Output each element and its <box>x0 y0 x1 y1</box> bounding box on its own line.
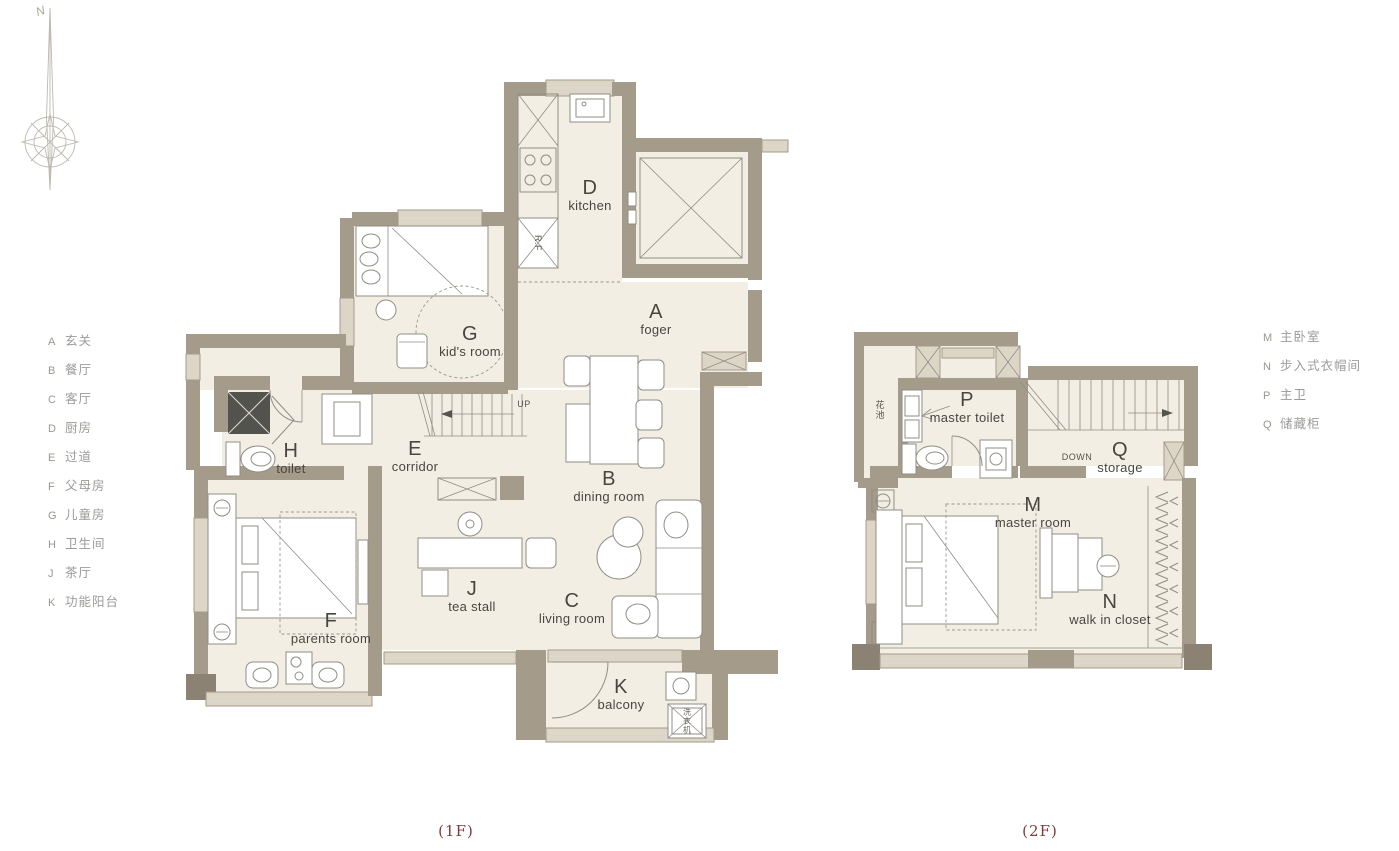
room-label-corridor: Ecorridor <box>392 439 438 475</box>
legend-item: J茶厅 <box>48 562 119 581</box>
legend-key: G <box>48 510 65 522</box>
legend-key: Q <box>1263 419 1280 431</box>
legend-item: N步入式衣帽间 <box>1263 355 1361 374</box>
legend-label: 儿童房 <box>65 504 106 523</box>
legend-label: 茶厅 <box>65 562 92 581</box>
legend-label: 功能阳台 <box>65 591 119 610</box>
legend-key: D <box>48 423 65 435</box>
floorplan-drawing <box>0 0 1399 851</box>
legend-item: K功能阳台 <box>48 591 119 610</box>
room-label-storage: Qstorage <box>1097 440 1142 476</box>
legend-key: J <box>48 568 65 580</box>
room-label-foyer: Afoger <box>640 302 671 338</box>
legend-item: F父母房 <box>48 475 119 494</box>
legend-key: C <box>48 394 65 406</box>
legend-key: K <box>48 597 65 609</box>
room-label-kids-room: Gkid's room <box>439 324 501 360</box>
stairs-up-label: UP <box>517 399 531 409</box>
legend-label: 客厅 <box>65 388 92 407</box>
legend-item: A玄关 <box>48 330 119 349</box>
legend-label: 父母房 <box>65 475 106 494</box>
legend-key: A <box>48 336 65 348</box>
stairs-down-label: DOWN <box>1062 452 1093 462</box>
planter-label: 花池 <box>874 400 887 420</box>
room-label-master-room: Mmaster room <box>995 495 1071 531</box>
compass-rose-icon <box>22 8 78 190</box>
legend-key: N <box>1263 361 1280 373</box>
washer-label: 洗衣机 <box>682 708 693 735</box>
legend-2f: M主卧室 N步入式衣帽间 P主卫 Q储藏柜 <box>1263 326 1361 442</box>
room-label-tea-stall: Jtea stall <box>448 579 496 615</box>
legend-item: H卫生间 <box>48 533 119 552</box>
legend-1f: A玄关 B餐厅 C客厅 D厨房 E过道 F父母房 G儿童房 H卫生间 J茶厅 K… <box>48 330 119 620</box>
legend-label: 步入式衣帽间 <box>1280 355 1361 374</box>
floorplan-canvas: N A玄关 B餐厅 C客厅 D厨房 E过道 F父母房 G儿童房 H卫生间 J茶厅… <box>0 0 1399 851</box>
dining-table <box>564 356 664 468</box>
caption-floor1: (1F) <box>438 822 474 840</box>
legend-label: 玄关 <box>65 330 92 349</box>
legend-label: 主卫 <box>1280 384 1307 403</box>
legend-item: E过道 <box>48 446 119 465</box>
legend-label: 卫生间 <box>65 533 106 552</box>
legend-key: E <box>48 452 65 464</box>
room-label-living-room: Cliving room <box>539 591 605 627</box>
room-label-master-toilet: Pmaster toilet <box>930 390 1005 426</box>
room-label-kitchen: Dkitchen <box>568 178 611 214</box>
room-label-dining-room: Bdining room <box>573 469 644 505</box>
legend-label: 过道 <box>65 446 92 465</box>
legend-label: 厨房 <box>65 417 92 436</box>
legend-key: P <box>1263 390 1280 402</box>
legend-key: F <box>48 481 65 493</box>
legend-item: D厨房 <box>48 417 119 436</box>
legend-item: Q储藏柜 <box>1263 413 1361 432</box>
legend-item: P主卫 <box>1263 384 1361 403</box>
legend-item: M主卧室 <box>1263 326 1361 345</box>
legend-item: C客厅 <box>48 388 119 407</box>
room-label-balcony: Kbalcony <box>598 677 645 713</box>
legend-key: H <box>48 539 65 551</box>
floor1-plan <box>186 80 788 742</box>
fridge-label: R.F <box>533 235 543 251</box>
legend-item: B餐厅 <box>48 359 119 378</box>
legend-label: 储藏柜 <box>1280 413 1321 432</box>
caption-floor2: (2F) <box>1022 822 1058 840</box>
legend-key: M <box>1263 332 1280 344</box>
room-label-toilet: Htoilet <box>276 441 305 477</box>
legend-key: B <box>48 365 65 377</box>
legend-label: 主卧室 <box>1280 326 1321 345</box>
room-label-walk-in-closet: Nwalk in closet <box>1069 592 1151 628</box>
legend-label: 餐厅 <box>65 359 92 378</box>
legend-item: G儿童房 <box>48 504 119 523</box>
room-label-parents-room: Fparents room <box>291 611 371 647</box>
